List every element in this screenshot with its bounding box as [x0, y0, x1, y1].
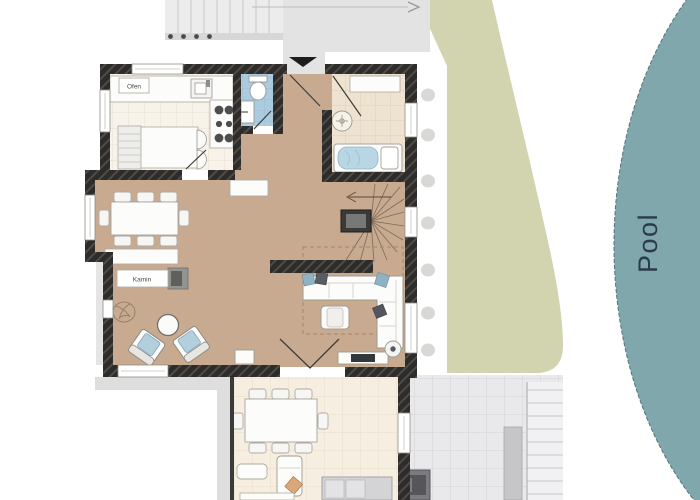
wall-segment — [103, 252, 113, 300]
hall-sideboard — [230, 180, 268, 196]
wall-segment — [322, 172, 417, 182]
stair-flight — [165, 0, 283, 33]
wall-segment — [85, 170, 95, 195]
dining-chair — [249, 389, 266, 399]
dining-chair — [249, 443, 266, 453]
dining-chair — [233, 413, 243, 429]
fireplace: Kamin — [117, 268, 188, 289]
dining-chair — [114, 192, 131, 202]
low-table — [240, 493, 294, 500]
wall-segment — [85, 170, 182, 180]
wall-segment — [183, 64, 287, 74]
wall-segment — [233, 74, 241, 170]
terrace-sofa — [322, 477, 392, 500]
floor-plan-canvas: Pool — [0, 0, 700, 500]
terrace-parapet — [504, 427, 522, 500]
oven-label: Ofen — [127, 84, 141, 91]
dining-chair — [99, 210, 109, 226]
wall-segment — [322, 110, 332, 172]
sideboard — [105, 249, 178, 264]
tv-board — [338, 352, 388, 364]
wall-segment — [273, 74, 283, 134]
wall-segment — [241, 126, 253, 134]
kitchen-table — [141, 127, 198, 168]
lounge-chair — [321, 306, 349, 329]
side-table — [158, 315, 179, 336]
walkway-top — [283, 0, 430, 52]
dining-chair — [272, 443, 289, 453]
dining-chair — [295, 389, 312, 399]
wall-segment — [103, 365, 118, 377]
window — [103, 300, 113, 318]
wall-segment — [398, 453, 410, 500]
wall-segment — [180, 365, 280, 377]
kitchen-bench — [118, 126, 141, 169]
pillow — [315, 272, 328, 285]
wall-segment — [405, 64, 417, 103]
toilet-tank — [249, 76, 267, 82]
kitchen-sink — [191, 79, 212, 98]
floor-plan: Pool — [0, 0, 700, 500]
coffee-table — [237, 464, 267, 479]
paved-terrace — [404, 375, 563, 500]
wall-segment — [270, 260, 373, 273]
dining-chair — [137, 236, 154, 246]
tv — [351, 354, 375, 362]
wall-segment — [208, 170, 235, 180]
pillow — [302, 273, 315, 286]
dining-chair — [160, 192, 177, 202]
dining-chair — [114, 236, 131, 246]
fireplace-label: Kamin — [133, 277, 152, 284]
wall-segment — [103, 318, 113, 365]
dining-chair — [272, 389, 289, 399]
shower-icon — [332, 111, 352, 131]
wall-segment — [405, 237, 417, 303]
wall-segment — [85, 240, 95, 252]
wall-segment — [405, 353, 417, 378]
stair-core-inner — [346, 214, 366, 228]
wall-segment — [100, 64, 110, 90]
wall-segment — [325, 64, 417, 74]
floor-lamp-icon — [385, 341, 401, 357]
small-cabinet — [235, 350, 254, 364]
dining-chair — [295, 443, 312, 453]
dining-chair — [137, 192, 154, 202]
dining-chair — [179, 210, 189, 226]
terrace-dining-table — [245, 399, 317, 442]
dining-chair — [160, 236, 177, 246]
bath-shelf — [350, 76, 400, 92]
toilet-bowl — [250, 82, 266, 100]
entry-stairs — [165, 0, 283, 40]
dining-table — [111, 202, 178, 235]
terrace-steps — [527, 382, 563, 500]
bathtub — [334, 144, 402, 172]
pool-label: Pool — [633, 213, 663, 273]
dining-chair — [318, 413, 328, 429]
wall-segment — [230, 377, 234, 500]
wall-segment — [398, 377, 410, 413]
